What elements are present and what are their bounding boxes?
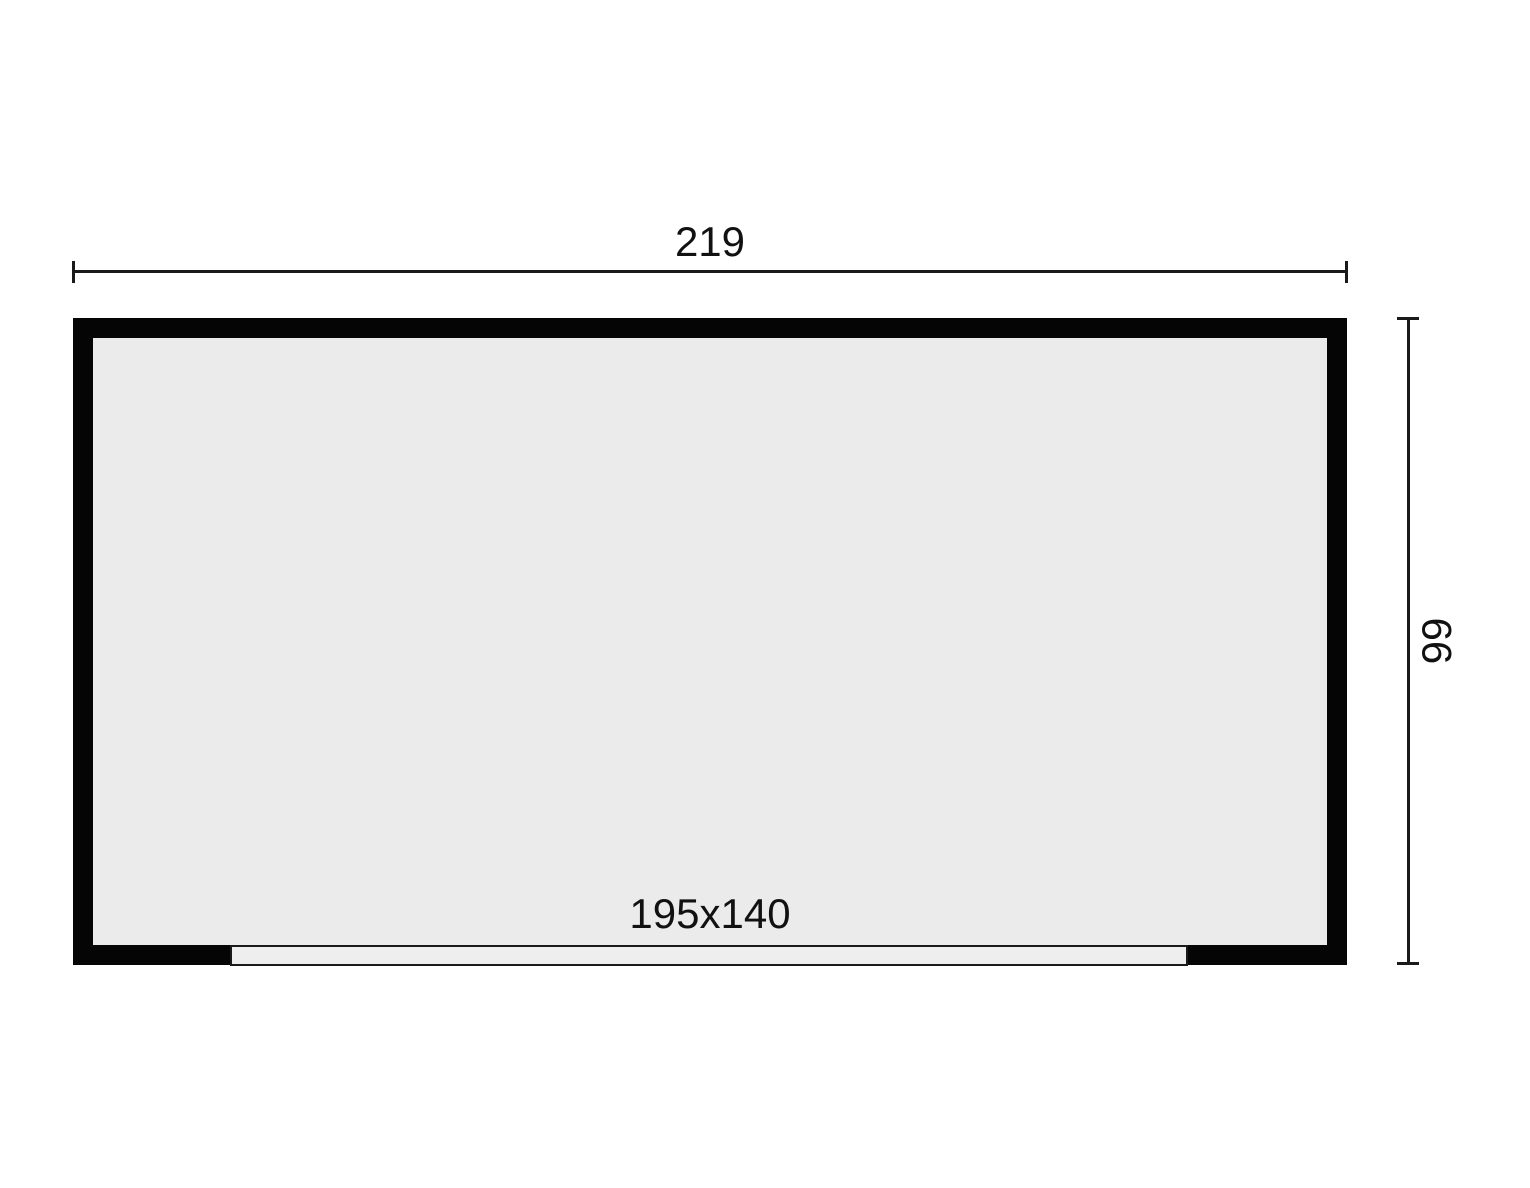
depth-dimension-tick-top [1397, 317, 1419, 320]
width-dimension-line [73, 270, 1347, 273]
width-dimension-tick-left [72, 261, 75, 283]
interior-floor [93, 338, 1327, 945]
depth-dimension-tick-bottom [1397, 962, 1419, 965]
depth-dimension-line [1407, 318, 1410, 965]
depth-dimension-label: 99 [1415, 618, 1459, 665]
floor-plan-drawing: 219 195x140 99 [0, 0, 1530, 1188]
width-dimension-label: 219 [73, 220, 1347, 264]
outer-wall [73, 318, 1347, 965]
opening-size-label: 195x140 [73, 892, 1347, 936]
front-opening [230, 945, 1188, 966]
width-dimension-tick-right [1345, 261, 1348, 283]
